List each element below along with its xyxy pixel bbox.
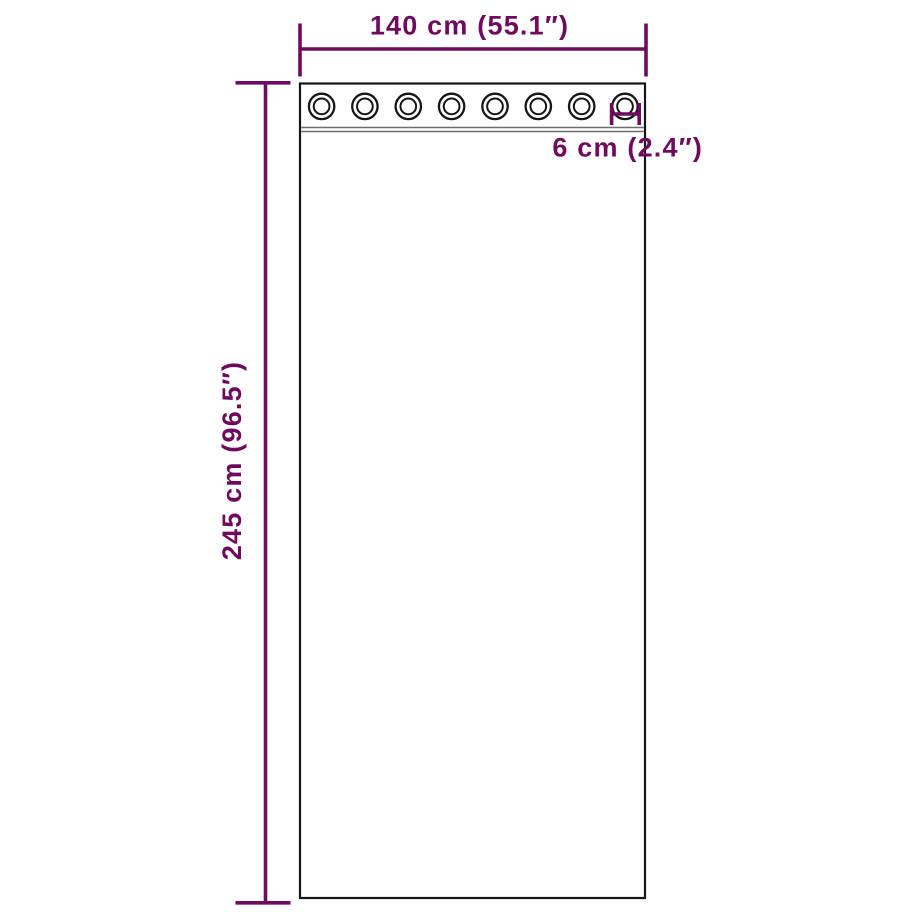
svg-text:245 cm (96.5″): 245 cm (96.5″): [217, 361, 247, 560]
svg-text:140 cm (55.1″): 140 cm (55.1″): [370, 11, 569, 41]
svg-text:6 cm (2.4″): 6 cm (2.4″): [552, 132, 703, 162]
